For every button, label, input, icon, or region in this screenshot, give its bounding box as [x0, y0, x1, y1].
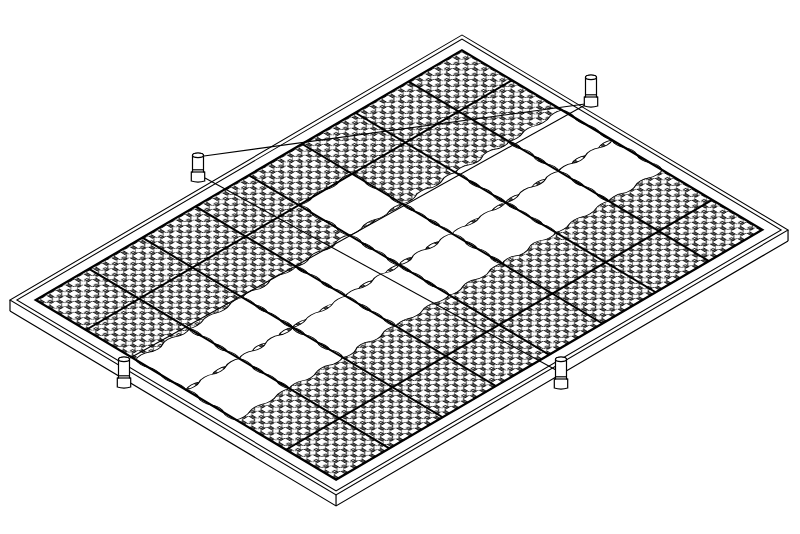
peg-top-face	[586, 75, 597, 80]
panel-isometric-group	[10, 35, 788, 495]
anchor-peg-2	[191, 153, 204, 182]
anchor-peg-3	[117, 357, 130, 388]
anchor-peg-4	[554, 357, 567, 389]
isometric-panel-drawing	[0, 0, 800, 534]
peg-top-face	[556, 357, 567, 362]
peg-top-face	[119, 357, 130, 362]
peg-top-face	[193, 153, 204, 158]
anchor-peg-1	[584, 75, 597, 107]
figure-canvas	[0, 0, 800, 534]
